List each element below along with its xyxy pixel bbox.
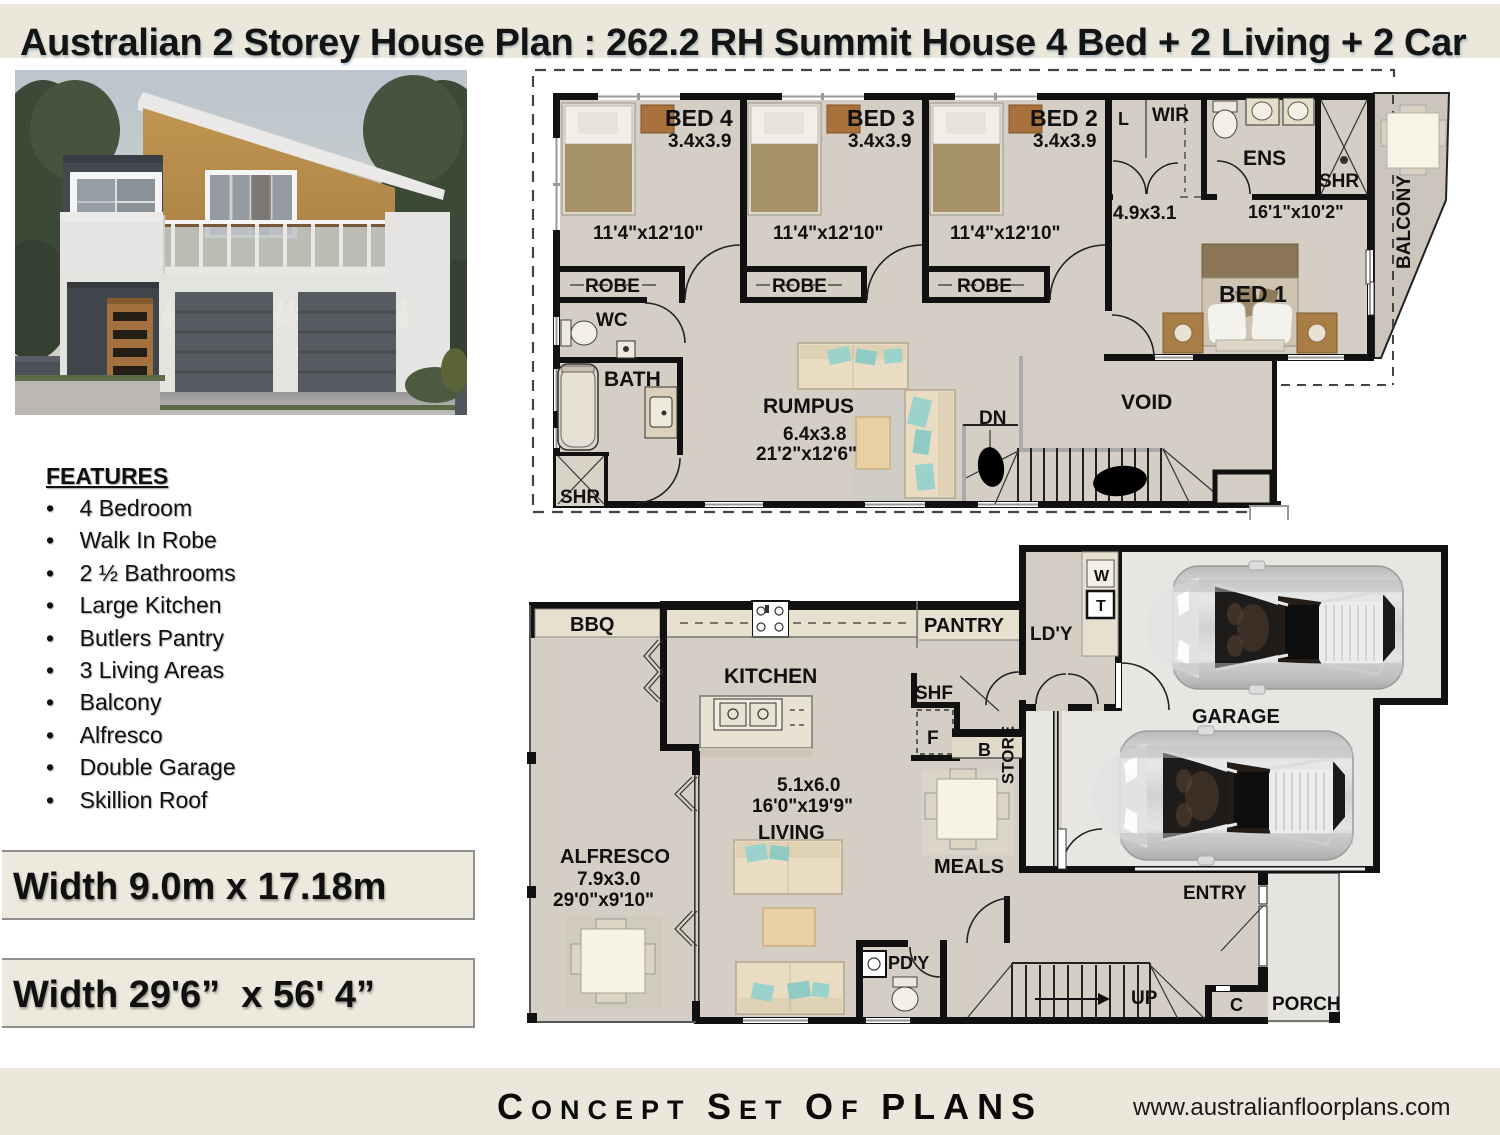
svg-text:W: W <box>1094 568 1110 585</box>
svg-text:16'0"x19'9": 16'0"x19'9" <box>752 796 853 817</box>
svg-text:4.9x3.1: 4.9x3.1 <box>1113 203 1177 224</box>
svg-text:MEALS: MEALS <box>934 856 1004 878</box>
svg-text:SHR: SHR <box>560 487 600 508</box>
svg-text:3.4x3.9: 3.4x3.9 <box>668 131 731 152</box>
svg-text:11'4"x12'10": 11'4"x12'10" <box>593 223 704 244</box>
svg-text:BALCONY: BALCONY <box>1394 175 1415 269</box>
svg-text:KITCHEN: KITCHEN <box>724 665 817 688</box>
svg-text:LIVING: LIVING <box>758 822 825 844</box>
svg-text:3.4x3.9: 3.4x3.9 <box>1033 131 1096 152</box>
svg-text:DN: DN <box>979 408 1006 429</box>
svg-text:ENTRY: ENTRY <box>1183 883 1247 904</box>
svg-text:B: B <box>978 740 991 760</box>
svg-text:F: F <box>927 728 939 749</box>
svg-text:3.4x3.9: 3.4x3.9 <box>848 131 911 152</box>
svg-text:SHF: SHF <box>915 683 953 704</box>
svg-text:ROBE: ROBE <box>957 276 1012 297</box>
svg-text:6.4x3.8: 6.4x3.8 <box>783 424 846 445</box>
svg-text:PORCH: PORCH <box>1272 994 1341 1015</box>
svg-text:C: C <box>1230 995 1243 1015</box>
svg-text:T: T <box>1096 598 1106 615</box>
svg-text:16'1"x10'2": 16'1"x10'2" <box>1248 202 1344 222</box>
svg-text:GARAGE: GARAGE <box>1192 706 1280 728</box>
svg-text:ROBE: ROBE <box>772 276 827 297</box>
svg-text:ALFRESCO: ALFRESCO <box>560 846 670 868</box>
svg-text:29'0"x9'10": 29'0"x9'10" <box>553 890 654 911</box>
svg-text:ENS: ENS <box>1243 147 1286 170</box>
svg-text:5.1x6.0: 5.1x6.0 <box>777 775 840 796</box>
svg-text:SHR: SHR <box>1319 171 1359 192</box>
svg-text:21'2"x12'6": 21'2"x12'6" <box>756 444 857 465</box>
svg-text:PD'Y: PD'Y <box>888 953 929 973</box>
svg-text:WC: WC <box>596 310 628 331</box>
svg-text:STORE: STORE <box>998 726 1017 784</box>
svg-text:11'4"x12'10": 11'4"x12'10" <box>773 223 884 244</box>
svg-text:BATH: BATH <box>604 368 661 391</box>
svg-text:7.9x3.0: 7.9x3.0 <box>577 869 640 890</box>
svg-text:BED 4: BED 4 <box>665 105 733 131</box>
svg-text:L: L <box>1118 109 1129 129</box>
svg-text:BED 1: BED 1 <box>1219 281 1287 307</box>
svg-text:BED 3: BED 3 <box>847 105 915 131</box>
svg-text:PANTRY: PANTRY <box>924 615 1005 637</box>
svg-text:LD'Y: LD'Y <box>1030 624 1073 645</box>
svg-text:UP: UP <box>1131 988 1158 1009</box>
svg-text:BED 2: BED 2 <box>1030 105 1098 131</box>
svg-text:VOID: VOID <box>1121 391 1172 414</box>
svg-text:ROBE: ROBE <box>585 276 640 297</box>
svg-text:WIR: WIR <box>1152 105 1189 126</box>
svg-text:RUMPUS: RUMPUS <box>763 395 854 418</box>
svg-text:BBQ: BBQ <box>570 614 614 636</box>
svg-text:11'4"x12'10": 11'4"x12'10" <box>950 223 1061 244</box>
